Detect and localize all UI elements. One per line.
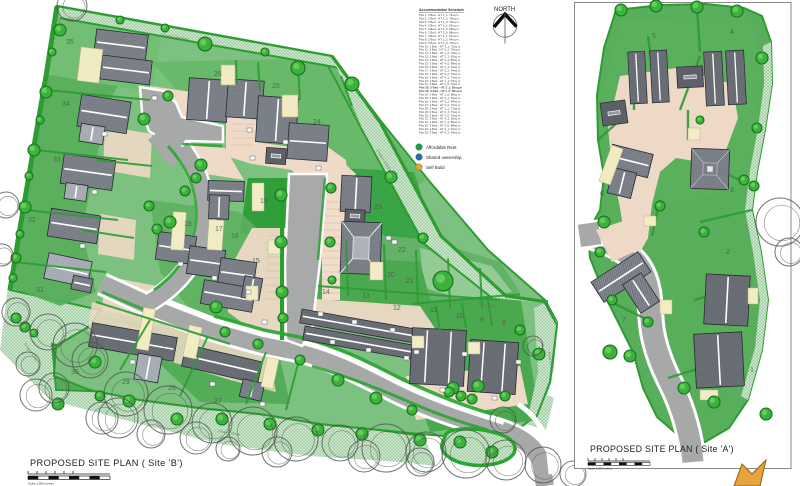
svg-text:26: 26 [214, 71, 222, 78]
svg-text:9: 9 [480, 317, 484, 324]
svg-text:15: 15 [252, 258, 260, 265]
svg-text:31: 31 [36, 287, 44, 294]
svg-text:Affordable Rent: Affordable Rent [426, 145, 457, 150]
svg-text:24: 24 [313, 119, 321, 126]
svg-text:33: 33 [53, 157, 61, 164]
svg-text:22: 22 [398, 247, 406, 254]
svg-text:3: 3 [730, 187, 734, 194]
svg-text:2: 2 [726, 249, 730, 256]
svg-text:14: 14 [322, 289, 330, 296]
svg-text:30: 30 [71, 369, 79, 376]
svg-text:Self Build: Self Build [426, 165, 445, 170]
svg-text:Accommodation Schedule: Accommodation Schedule [419, 8, 464, 12]
svg-text:Shared ownership: Shared ownership [426, 155, 462, 160]
svg-text:5: 5 [652, 33, 656, 40]
svg-text:29: 29 [122, 379, 130, 386]
svg-text:11: 11 [430, 307, 437, 314]
svg-text:Plot 35: 3 Bed - HT 4_2: 94sq.: Plot 35: 3 Bed - HT 4_2: 94sq.m [419, 131, 461, 135]
svg-text:28: 28 [168, 385, 176, 392]
svg-text:Scale 1:500 metres: Scale 1:500 metres [28, 482, 54, 486]
svg-text:PROPOSED SITE PLAN ( Site 'B': PROPOSED SITE PLAN ( Site 'B') [30, 458, 183, 468]
svg-text:27: 27 [214, 398, 222, 405]
svg-text:Scale 1:500 metres: Scale 1:500 metres [588, 467, 613, 471]
svg-text:21: 21 [406, 278, 414, 285]
svg-text:10: 10 [456, 313, 464, 320]
svg-text:7: 7 [622, 317, 626, 324]
svg-text:PROPOSED SITE PLAN ( Site 'A': PROPOSED SITE PLAN ( Site 'A') [590, 444, 734, 454]
svg-text:18: 18 [184, 221, 192, 228]
svg-text:6: 6 [600, 191, 604, 198]
svg-text:12: 12 [393, 305, 401, 312]
svg-text:35: 35 [66, 39, 74, 46]
svg-text:17: 17 [215, 226, 223, 233]
svg-text:20: 20 [387, 272, 395, 279]
svg-text:19: 19 [260, 198, 268, 205]
svg-text:25: 25 [272, 83, 280, 90]
svg-text:16: 16 [231, 233, 239, 240]
svg-text:1: 1 [750, 367, 754, 374]
svg-text:23: 23 [374, 204, 382, 211]
svg-text:34: 34 [62, 101, 70, 108]
svg-text:13: 13 [362, 293, 370, 300]
svg-text:4: 4 [730, 29, 734, 36]
svg-text:32: 32 [28, 217, 36, 224]
svg-text:8: 8 [502, 320, 506, 327]
